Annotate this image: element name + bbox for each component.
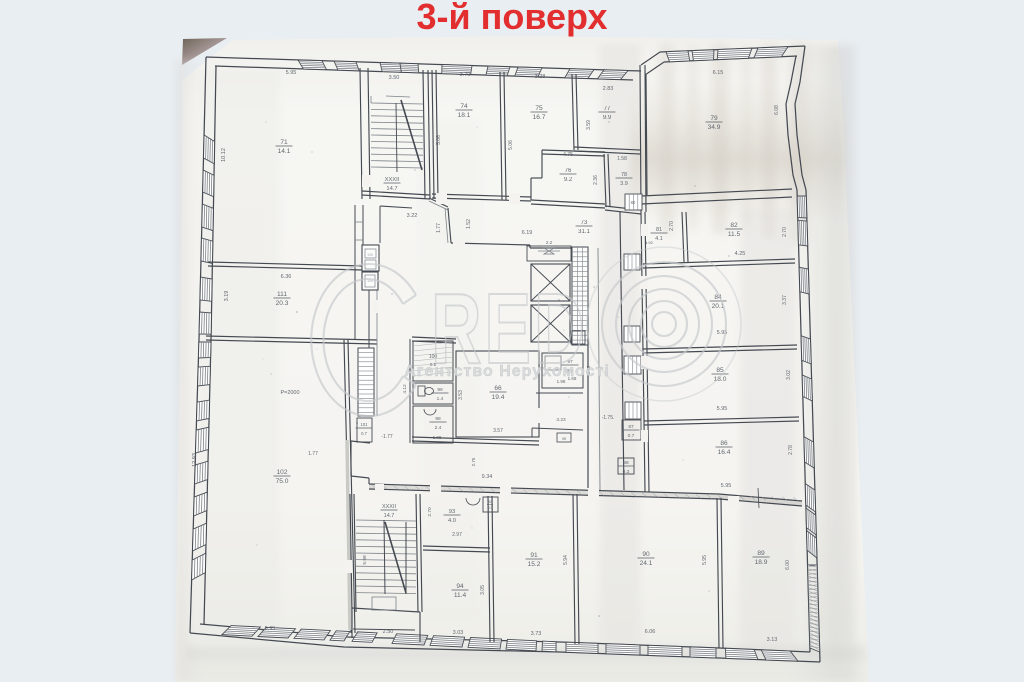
svg-text:20.3: 20.3 xyxy=(276,300,289,307)
svg-text:1.92: 1.92 xyxy=(645,240,654,245)
svg-text:14.7: 14.7 xyxy=(386,186,397,192)
svg-text:3.59: 3.59 xyxy=(586,120,592,130)
svg-text:78: 78 xyxy=(621,172,627,178)
svg-text:6.06: 6.06 xyxy=(645,629,656,635)
svg-text:88: 88 xyxy=(623,460,629,466)
svg-text:82: 82 xyxy=(730,222,738,229)
svg-text:12.93: 12.93 xyxy=(192,453,198,467)
svg-text:19.4: 19.4 xyxy=(492,394,505,401)
svg-text:0.7: 0.7 xyxy=(628,433,635,439)
svg-text:74: 74 xyxy=(460,103,468,110)
svg-text:5.95: 5.95 xyxy=(286,70,297,76)
svg-text:2.50: 2.50 xyxy=(383,629,394,635)
svg-text:73: 73 xyxy=(581,220,588,226)
svg-text:2.70: 2.70 xyxy=(669,221,675,231)
svg-text:102: 102 xyxy=(276,469,287,476)
svg-text:87: 87 xyxy=(628,424,634,430)
svg-text:6.15: 6.15 xyxy=(713,70,724,76)
svg-text:66: 66 xyxy=(494,385,502,392)
svg-text:3.70: 3.70 xyxy=(460,72,471,78)
svg-text:34.9: 34.9 xyxy=(708,124,721,131)
svg-text:2.70: 2.70 xyxy=(427,507,433,517)
svg-text:4.25: 4.25 xyxy=(735,251,746,257)
svg-text:5.95: 5.95 xyxy=(717,406,728,412)
svg-text:1.77: 1.77 xyxy=(436,223,442,233)
svg-text:6.08: 6.08 xyxy=(774,105,780,115)
svg-text:0.3: 0.3 xyxy=(623,469,630,475)
svg-text:11.4: 11.4 xyxy=(454,592,467,599)
svg-text:81: 81 xyxy=(656,227,662,233)
svg-text:18.1: 18.1 xyxy=(458,112,471,119)
svg-text:4.1: 4.1 xyxy=(655,236,663,242)
svg-text:3.50: 3.50 xyxy=(389,75,400,81)
svg-text:18.9: 18.9 xyxy=(755,559,768,566)
svg-text:3.73: 3.73 xyxy=(531,631,542,637)
svg-text:3.22: 3.22 xyxy=(407,213,418,219)
svg-text:5.06: 5.06 xyxy=(508,140,514,150)
svg-text:Агентство Нерухомості: Агентство Нерухомості xyxy=(404,363,610,380)
svg-text:3.53: 3.53 xyxy=(458,390,464,400)
svg-text:4.12: 4.12 xyxy=(402,384,408,394)
svg-text:9.2: 9.2 xyxy=(564,177,573,183)
svg-text:111: 111 xyxy=(277,291,287,298)
svg-text:16.7: 16.7 xyxy=(533,114,546,121)
svg-text:1.4: 1.4 xyxy=(437,396,444,402)
svg-text:71: 71 xyxy=(280,139,288,146)
svg-text:1.77: 1.77 xyxy=(308,451,318,457)
svg-text:-1.77: -1.77 xyxy=(381,434,393,440)
svg-text:5.98: 5.98 xyxy=(362,555,368,565)
svg-text:4.0: 4.0 xyxy=(448,518,456,524)
svg-text:5.94: 5.94 xyxy=(563,555,569,565)
svg-text:15.2: 15.2 xyxy=(528,561,541,568)
svg-text:3.13: 3.13 xyxy=(767,637,778,643)
svg-text:101: 101 xyxy=(361,422,369,427)
svg-text:90: 90 xyxy=(642,551,650,558)
svg-text:80: 80 xyxy=(631,200,636,205)
svg-text:3.03: 3.03 xyxy=(453,630,464,636)
svg-text:3.9: 3.9 xyxy=(620,181,628,187)
svg-text:98: 98 xyxy=(435,416,441,422)
svg-text:31.1: 31.1 xyxy=(578,229,590,235)
svg-text:1.58: 1.58 xyxy=(617,156,627,162)
svg-text:91: 91 xyxy=(530,552,538,559)
svg-text:2.4: 2.4 xyxy=(435,425,442,431)
svg-text:3.28: 3.28 xyxy=(535,74,546,80)
svg-text:5.95: 5.95 xyxy=(721,483,732,489)
svg-text:0.7: 0.7 xyxy=(361,431,367,436)
svg-text:Р=2000: Р=2000 xyxy=(280,390,299,396)
svg-text:XXXII: XXXII xyxy=(382,504,397,510)
svg-text:2.83: 2.83 xyxy=(603,86,614,92)
svg-text:6.00: 6.00 xyxy=(785,560,791,570)
svg-text:6.19: 6.19 xyxy=(522,230,533,236)
svg-text:14.1: 14.1 xyxy=(278,148,291,155)
svg-text:-1.75.: -1.75. xyxy=(602,415,615,421)
svg-text:3.02: 3.02 xyxy=(786,370,792,380)
svg-text:10.12: 10.12 xyxy=(221,148,227,162)
svg-text:3.19: 3.19 xyxy=(224,291,230,302)
svg-text:2.36: 2.36 xyxy=(593,175,599,185)
svg-text:3.05: 3.05 xyxy=(480,585,486,595)
svg-text:2.70: 2.70 xyxy=(782,227,788,237)
svg-text:2.2: 2.2 xyxy=(546,240,553,245)
svg-text:3.23: 3.23 xyxy=(556,417,566,423)
svg-text:2.75: 2.75 xyxy=(471,457,476,466)
svg-text:3.57: 3.57 xyxy=(493,428,503,434)
svg-text:105: 105 xyxy=(367,253,373,257)
svg-text:1.52: 1.52 xyxy=(466,219,472,229)
svg-text:2.97: 2.97 xyxy=(452,532,462,538)
svg-text:75: 75 xyxy=(535,105,543,112)
svg-text:89: 89 xyxy=(757,550,765,557)
svg-text:9.9: 9.9 xyxy=(603,115,612,121)
svg-text:75.0: 75.0 xyxy=(276,478,289,485)
svg-text:14.7: 14.7 xyxy=(384,513,395,519)
svg-text:79: 79 xyxy=(710,115,718,122)
svg-text:XXXII: XXXII xyxy=(385,177,400,183)
svg-text:2.78: 2.78 xyxy=(788,445,794,455)
svg-text:76: 76 xyxy=(565,168,572,174)
svg-text:86: 86 xyxy=(720,440,728,447)
svg-text:9.34: 9.34 xyxy=(482,474,493,480)
svg-text:95: 95 xyxy=(562,437,566,441)
svg-text:6.36: 6.36 xyxy=(281,274,292,280)
svg-text:94: 94 xyxy=(456,583,464,590)
svg-text:5.95: 5.95 xyxy=(265,626,276,632)
svg-text:11.5: 11.5 xyxy=(728,231,741,238)
svg-text:16.4: 16.4 xyxy=(718,449,731,456)
svg-text:3.37: 3.37 xyxy=(782,295,788,305)
svg-text:99: 99 xyxy=(437,387,443,393)
svg-text:5.95: 5.95 xyxy=(702,555,708,565)
svg-text:77: 77 xyxy=(604,106,611,112)
svg-text:24.1: 24.1 xyxy=(640,560,653,567)
svg-text:93: 93 xyxy=(449,509,455,515)
